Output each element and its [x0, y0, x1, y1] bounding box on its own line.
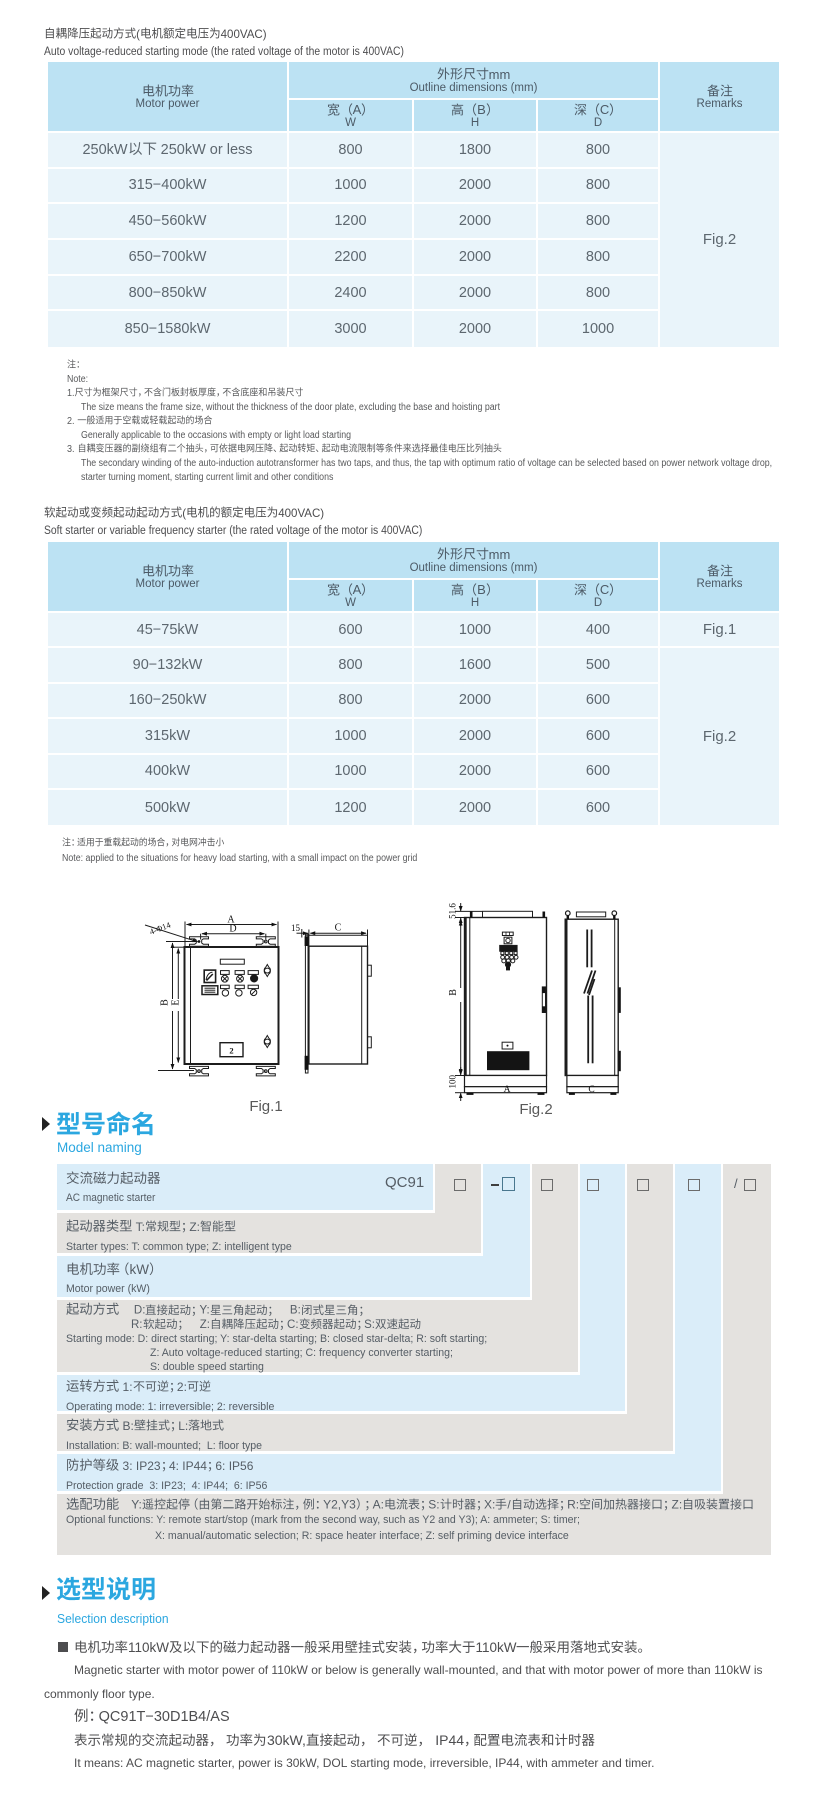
svg-text:100: 100: [448, 1075, 458, 1089]
svg-text:2: 2: [229, 1046, 233, 1056]
svg-text:D: D: [229, 924, 236, 935]
svg-text:51.6: 51.6: [448, 903, 458, 919]
svg-text:B: B: [160, 999, 171, 1006]
svg-text:E: E: [171, 999, 182, 1005]
svg-text:4-Φ14: 4-Φ14: [148, 919, 173, 936]
svg-text:C: C: [335, 923, 342, 934]
svg-text:15: 15: [291, 923, 301, 933]
svg-text:B: B: [448, 989, 459, 996]
svg-text:A: A: [504, 1085, 511, 1095]
svg-text:C: C: [588, 1085, 594, 1095]
